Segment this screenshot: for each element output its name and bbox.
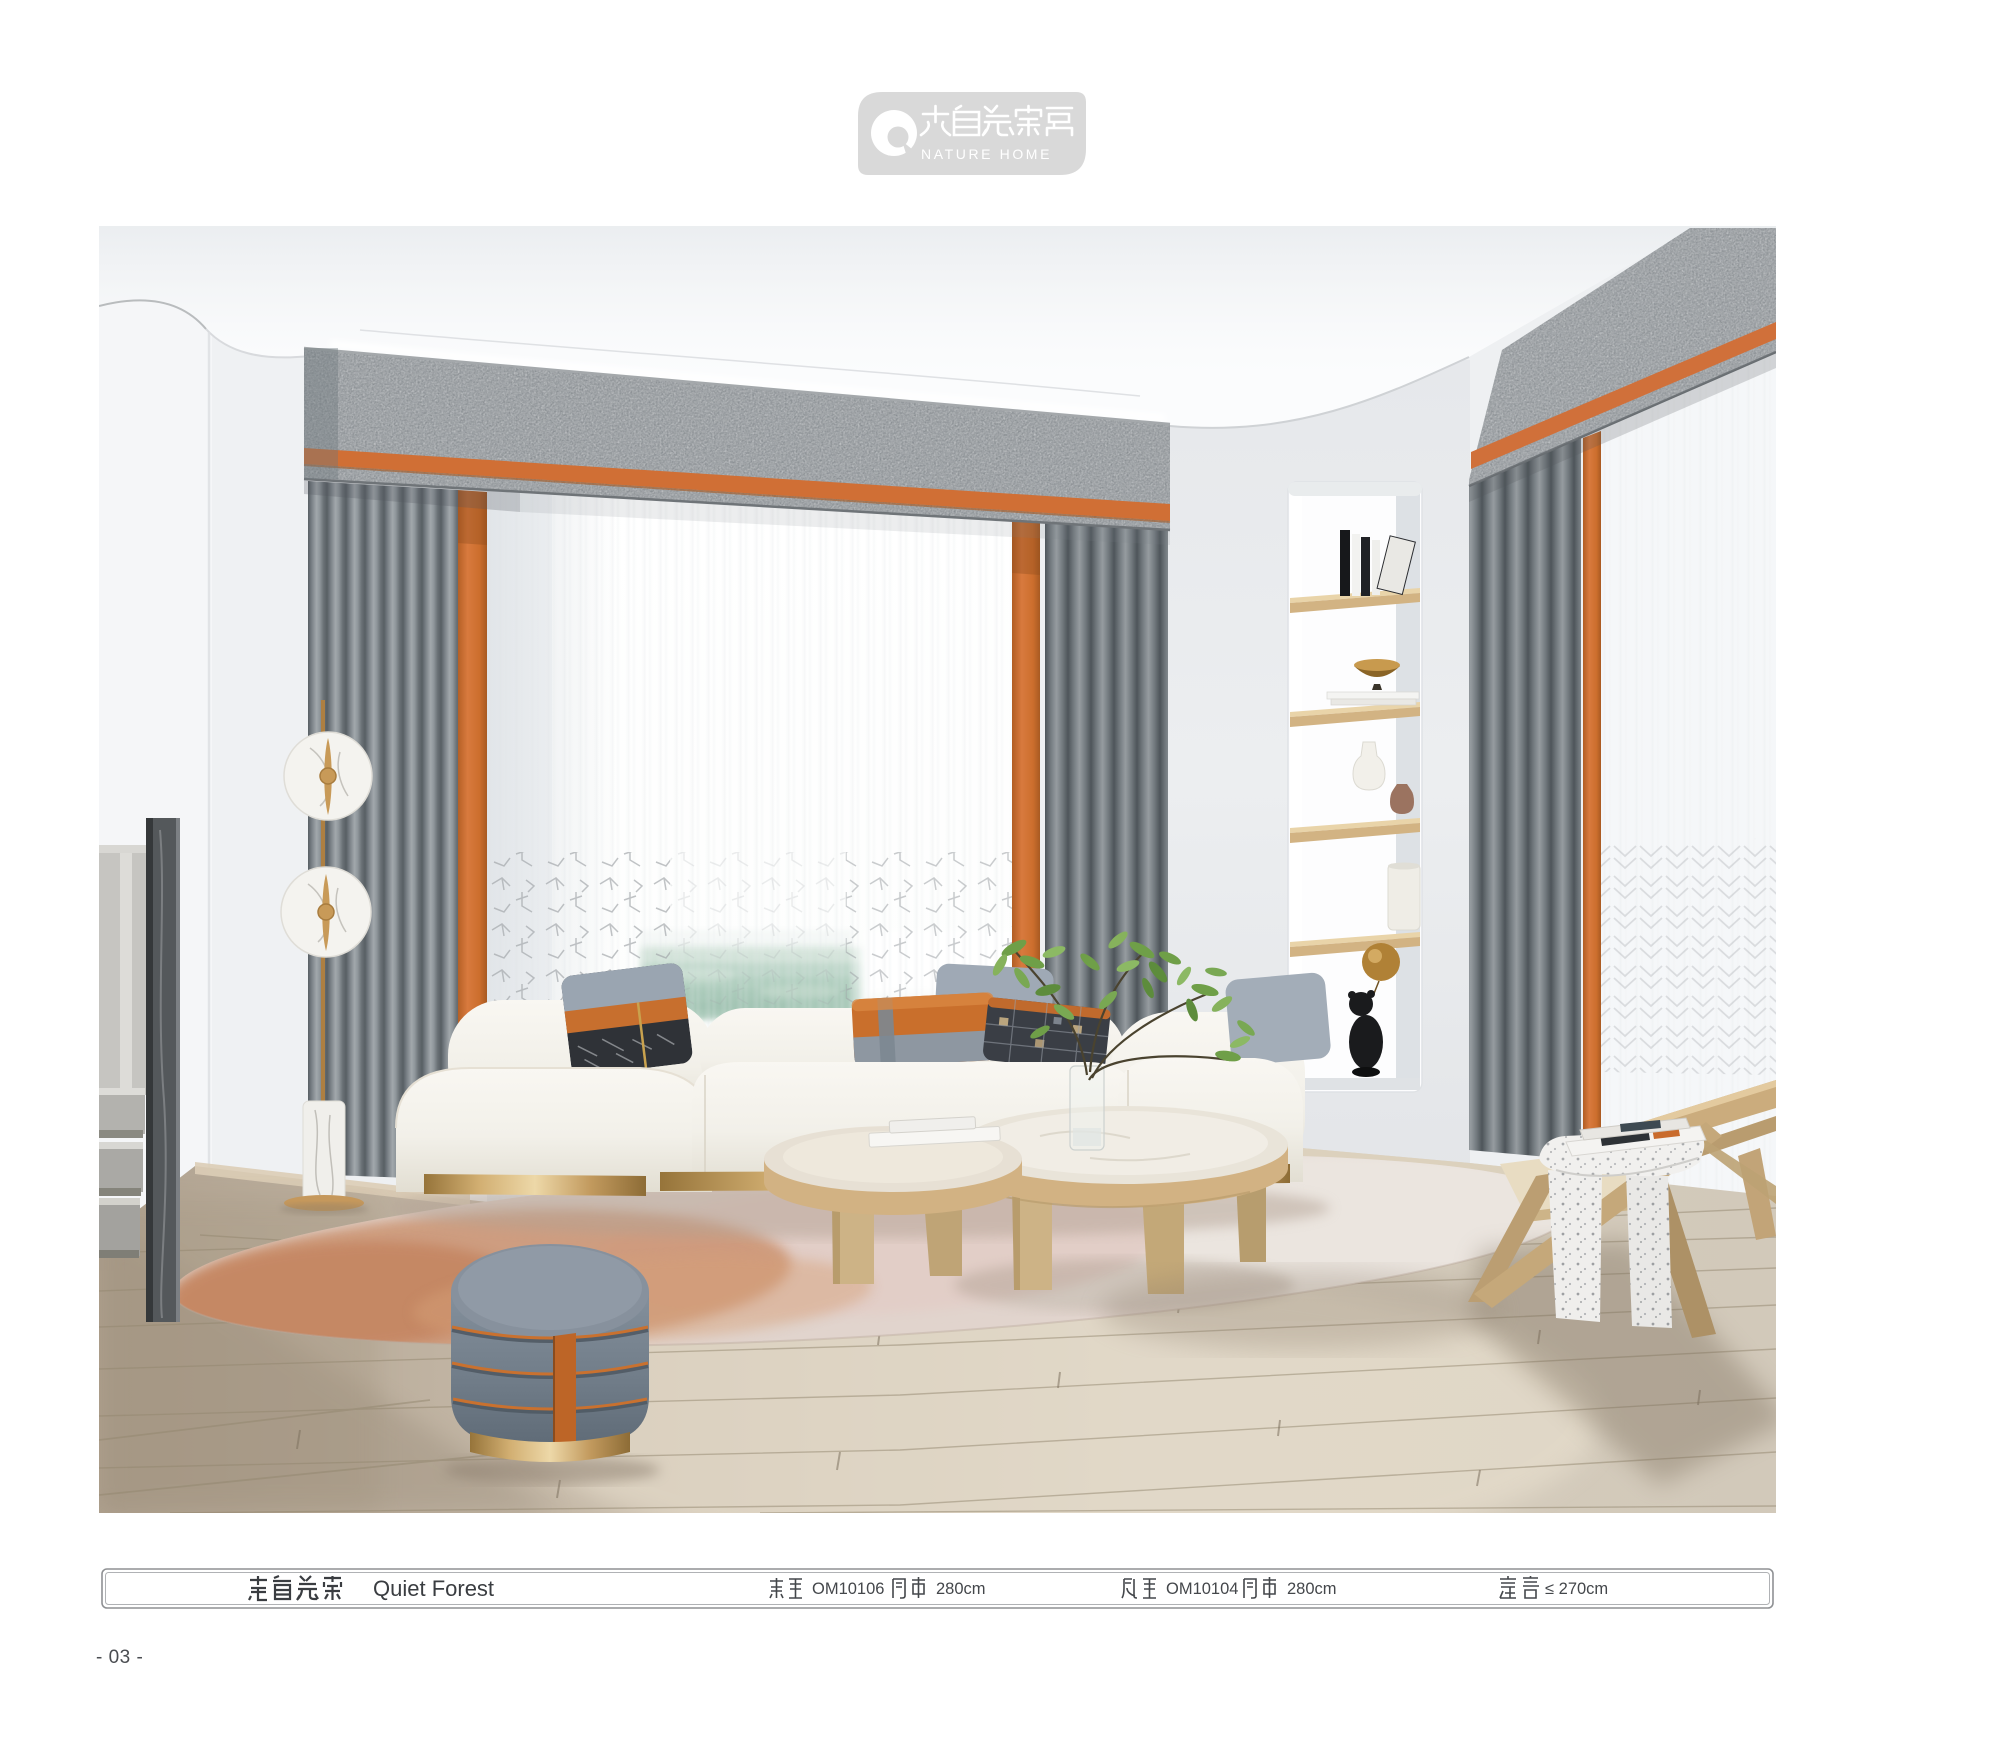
- svg-text:OM10106: OM10106: [812, 1580, 884, 1598]
- svg-text:280cm: 280cm: [936, 1580, 986, 1598]
- svg-text:≤ 270cm: ≤ 270cm: [1545, 1580, 1608, 1598]
- svg-text:NATURE HOME: NATURE HOME: [921, 146, 1052, 162]
- svg-text:OM10104: OM10104: [1166, 1580, 1238, 1598]
- svg-text:280cm: 280cm: [1287, 1580, 1337, 1598]
- svg-text:Quiet Forest: Quiet Forest: [373, 1576, 494, 1601]
